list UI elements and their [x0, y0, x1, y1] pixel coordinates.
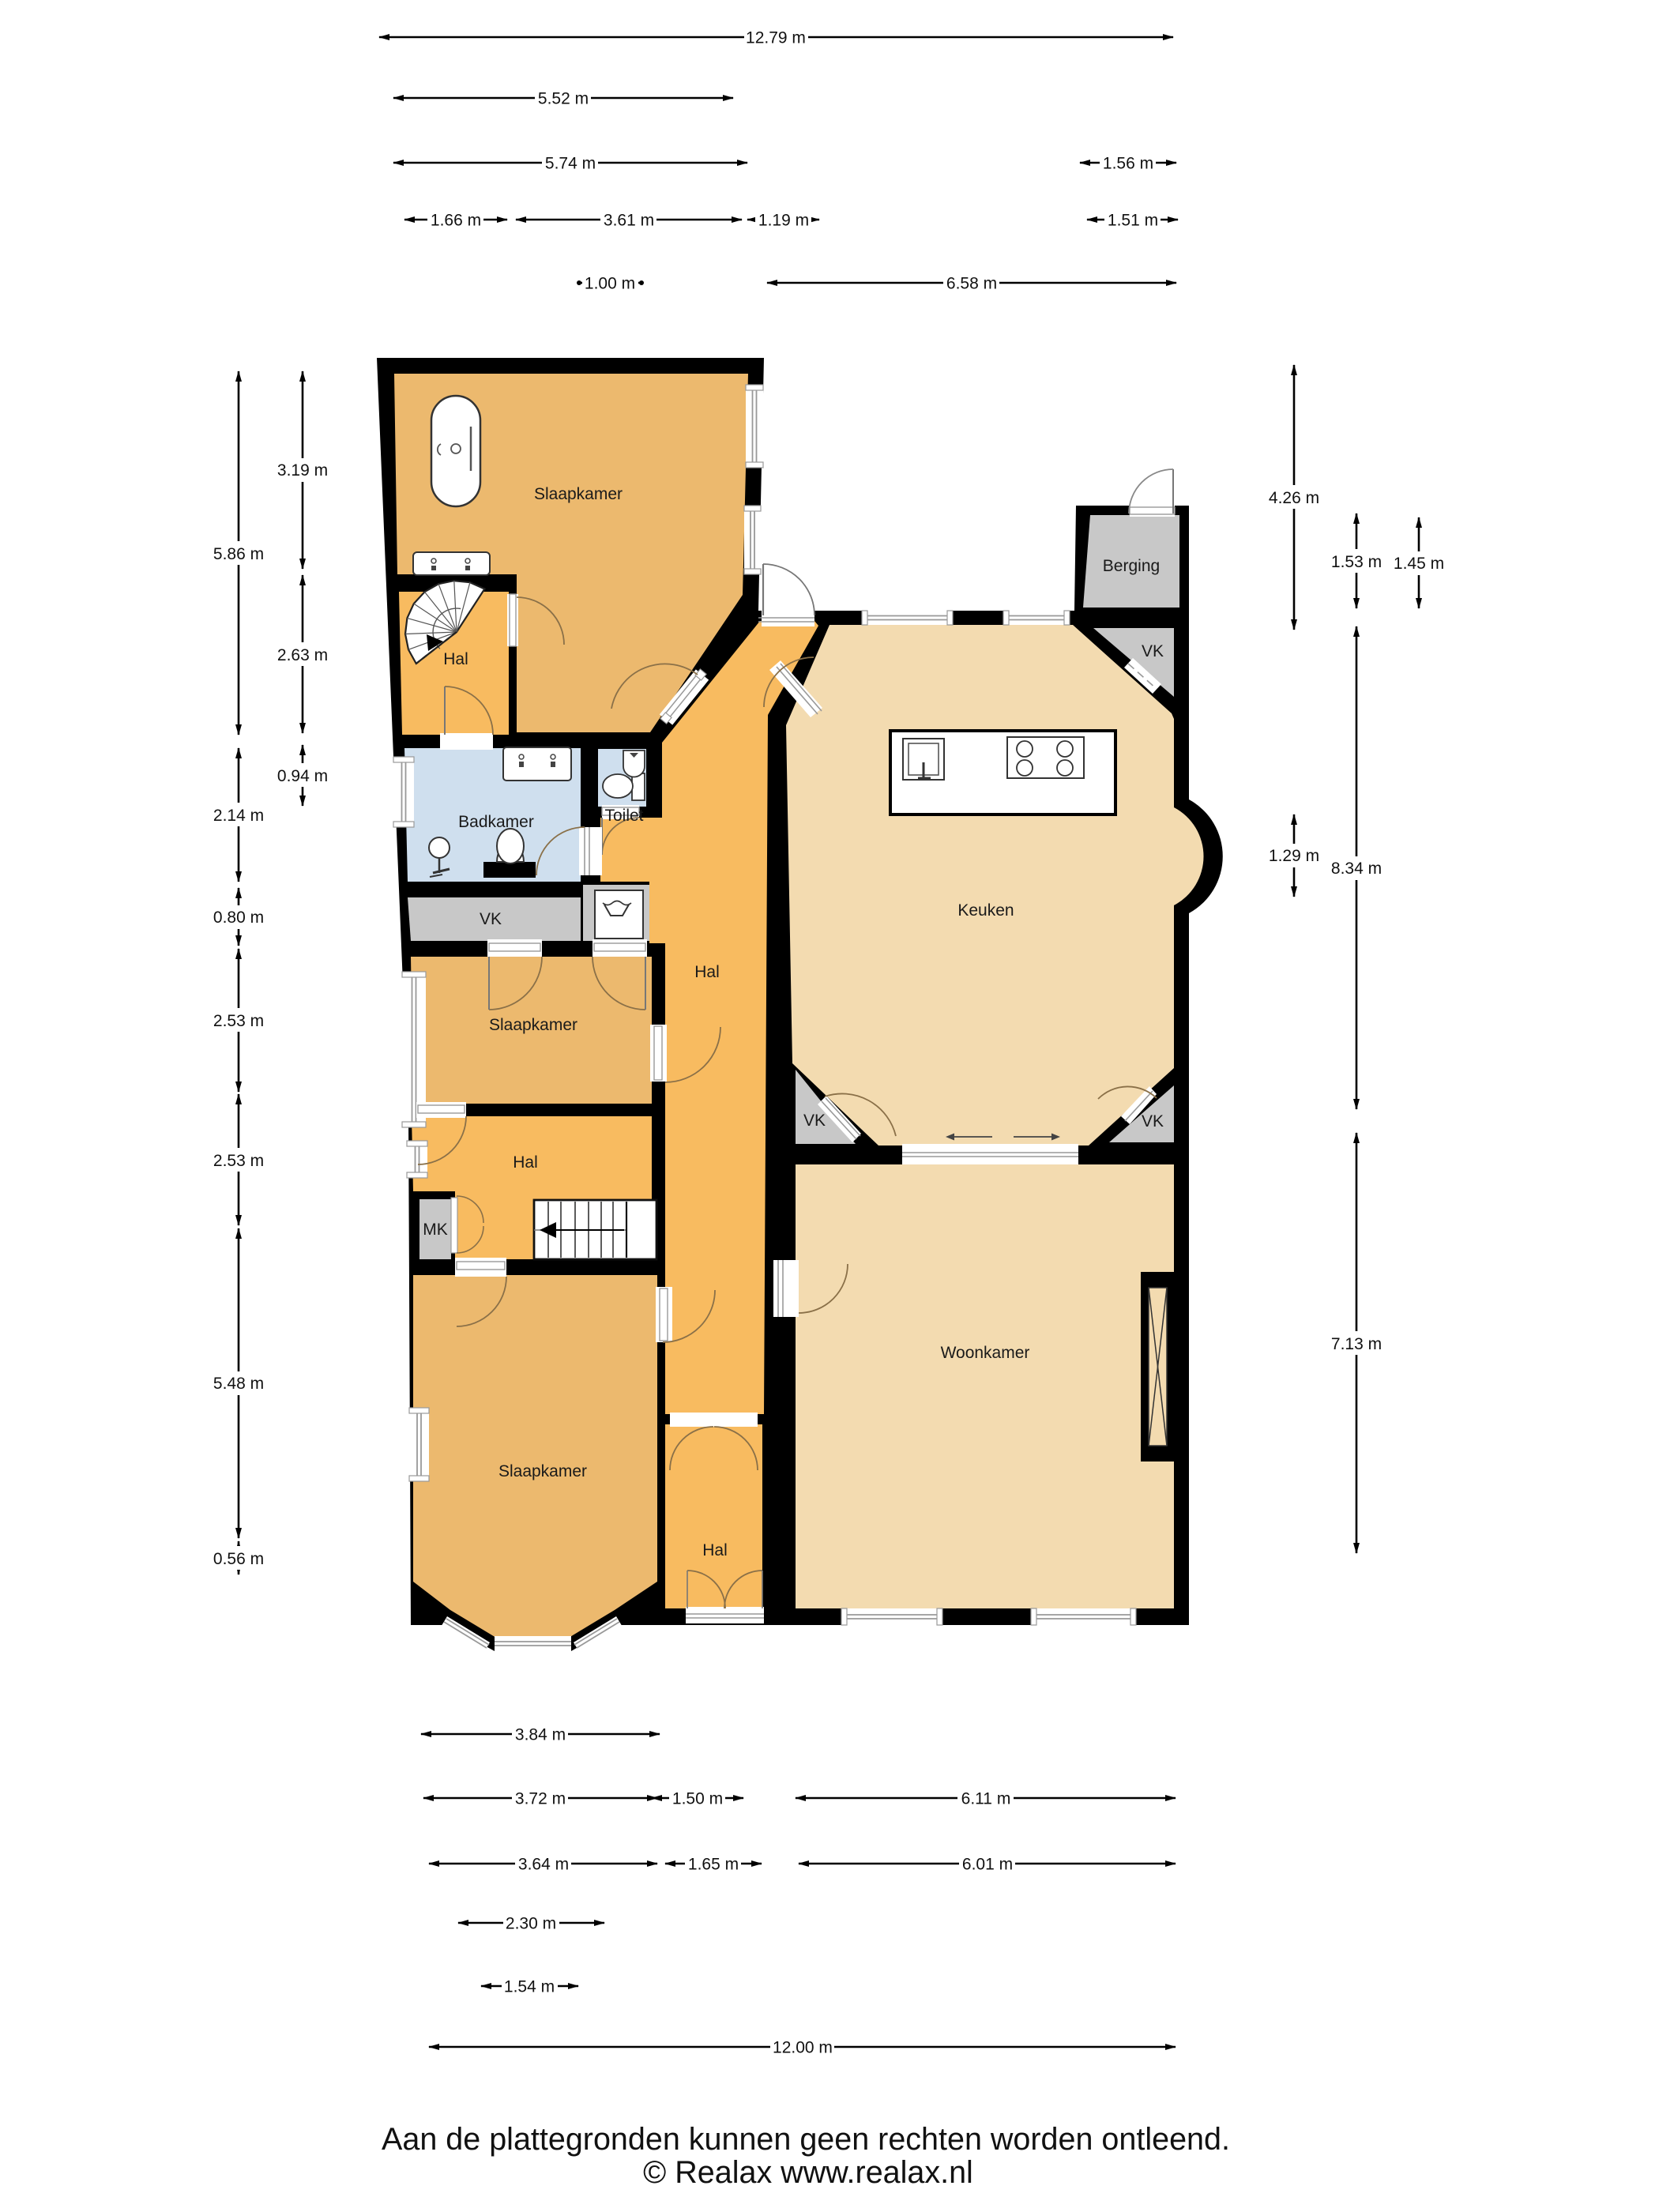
svg-text:4.26 m: 4.26 m: [1269, 489, 1319, 507]
svg-text:3.19 m: 3.19 m: [277, 461, 328, 480]
svg-text:1.66 m: 1.66 m: [431, 212, 481, 230]
svg-text:7.13 m: 7.13 m: [1331, 1335, 1382, 1353]
svg-text:5.48 m: 5.48 m: [213, 1375, 264, 1393]
svg-text:VK: VK: [480, 910, 502, 928]
svg-text:VK: VK: [1142, 642, 1164, 660]
svg-text:8.34 m: 8.34 m: [1331, 860, 1382, 878]
svg-text:© Realax www.realax.nl: © Realax www.realax.nl: [643, 2155, 973, 2190]
svg-text:0.80 m: 0.80 m: [213, 908, 264, 927]
svg-text:6.01 m: 6.01 m: [962, 1856, 1013, 1874]
svg-text:0.56 m: 0.56 m: [213, 1550, 264, 1568]
svg-text:Slaapkamer: Slaapkamer: [498, 1462, 587, 1480]
svg-text:Badkamer: Badkamer: [458, 813, 534, 831]
svg-text:2.53 m: 2.53 m: [213, 1152, 264, 1170]
svg-text:3.64 m: 3.64 m: [518, 1856, 569, 1874]
svg-text:Aan de plattegronden kunnen ge: Aan de plattegronden kunnen geen rechten…: [382, 2122, 1230, 2157]
svg-text:1.00 m: 1.00 m: [585, 275, 635, 293]
svg-text:Woonkamer: Woonkamer: [941, 1344, 1030, 1362]
svg-text:1.65 m: 1.65 m: [688, 1856, 739, 1874]
svg-text:12.79 m: 12.79 m: [746, 29, 806, 47]
svg-text:5.74 m: 5.74 m: [545, 155, 596, 173]
svg-text:1.19 m: 1.19 m: [758, 212, 809, 230]
svg-text:Toilet: Toilet: [604, 807, 643, 825]
svg-text:3.61 m: 3.61 m: [604, 212, 654, 230]
svg-text:6.11 m: 6.11 m: [961, 1790, 1011, 1808]
svg-text:3.84 m: 3.84 m: [515, 1726, 566, 1744]
svg-text:1.54 m: 1.54 m: [504, 1978, 555, 1996]
svg-text:Hal: Hal: [443, 650, 468, 668]
svg-text:MK: MK: [423, 1221, 448, 1239]
svg-text:2.63 m: 2.63 m: [277, 646, 328, 664]
svg-text:Slaapkamer: Slaapkamer: [489, 1016, 577, 1034]
svg-text:Hal: Hal: [694, 963, 720, 981]
svg-text:0.94 m: 0.94 m: [277, 767, 328, 785]
svg-text:2.53 m: 2.53 m: [213, 1012, 264, 1030]
svg-text:1.51 m: 1.51 m: [1108, 212, 1158, 230]
svg-text:VK: VK: [803, 1112, 826, 1130]
svg-text:6.58 m: 6.58 m: [946, 275, 997, 293]
svg-text:1.45 m: 1.45 m: [1394, 555, 1444, 573]
svg-text:5.52 m: 5.52 m: [538, 90, 589, 108]
svg-text:VK: VK: [1142, 1112, 1164, 1130]
svg-text:5.86 m: 5.86 m: [213, 545, 264, 563]
svg-text:Keuken: Keuken: [957, 901, 1014, 920]
svg-text:Hal: Hal: [702, 1541, 728, 1559]
svg-text:Slaapkamer: Slaapkamer: [534, 485, 623, 503]
svg-text:1.29 m: 1.29 m: [1269, 847, 1319, 865]
svg-text:1.56 m: 1.56 m: [1103, 155, 1153, 173]
svg-text:Hal: Hal: [513, 1153, 538, 1172]
svg-text:1.50 m: 1.50 m: [672, 1790, 723, 1808]
svg-text:3.72 m: 3.72 m: [515, 1790, 566, 1808]
svg-text:2.14 m: 2.14 m: [213, 807, 264, 825]
svg-text:2.30 m: 2.30 m: [506, 1915, 556, 1933]
svg-text:Berging: Berging: [1103, 557, 1160, 575]
svg-text:12.00 m: 12.00 m: [773, 2039, 833, 2057]
svg-text:1.53 m: 1.53 m: [1331, 553, 1382, 571]
